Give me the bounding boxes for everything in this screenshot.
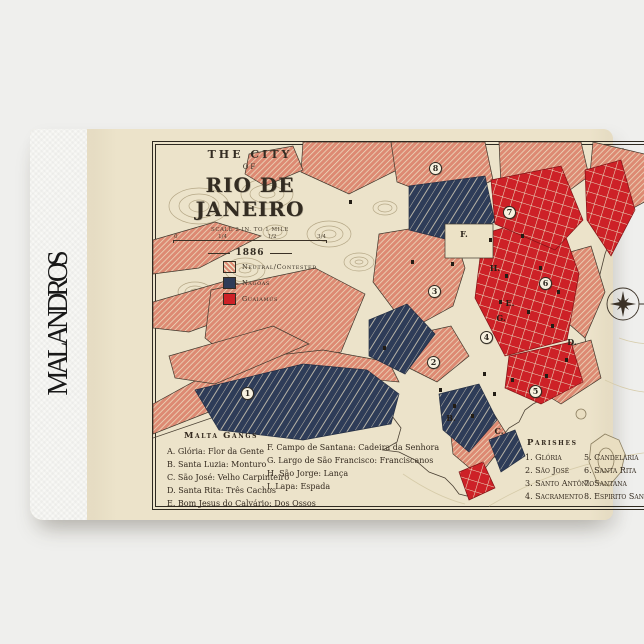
map-marker-1: 1 bbox=[241, 387, 254, 400]
legend-swatch-hatched bbox=[223, 261, 236, 273]
list-entry: F. Campo de Santana: Cadeira da Senhora bbox=[267, 441, 439, 454]
year-dash-right bbox=[270, 253, 292, 254]
scale-bar bbox=[173, 240, 327, 243]
scale-tick: 0 bbox=[174, 234, 178, 240]
letter-marker-B: B. bbox=[446, 413, 456, 423]
list-entry: G. Largo de São Francisco: Franciscanos bbox=[267, 454, 439, 467]
letter-marker-G: G. bbox=[496, 313, 505, 323]
map-frame: THE CITY OF RIO DE JANEIRO SCALE 2 IN. T… bbox=[152, 141, 644, 510]
letter-marker-E: E. bbox=[506, 298, 515, 308]
letter-marker-C: C. bbox=[494, 426, 503, 436]
compass-rose-icon bbox=[607, 288, 644, 320]
parishes-column2: 5. Candelária6. Santa Rita7. Santana8. E… bbox=[584, 451, 644, 503]
scale-label: SCALE 2 IN. TO 1 MILE bbox=[157, 227, 343, 233]
year-row: 1886 bbox=[157, 248, 343, 258]
parishes-title: Parishes bbox=[527, 438, 578, 448]
malta-gangs-column2: F. Campo de Santana: Cadeira da SenhoraG… bbox=[267, 441, 439, 493]
brand-text: MALANDROS bbox=[43, 254, 75, 395]
map-print: THE CITY OF RIO DE JANEIRO SCALE 2 IN. T… bbox=[87, 129, 613, 520]
product-photo: MALANDROS bbox=[0, 0, 644, 644]
map-year: 1886 bbox=[235, 248, 264, 258]
list-entry: 8. Espirito Santo bbox=[584, 490, 644, 503]
legend-item: Guaiamús bbox=[223, 293, 317, 305]
map-title-line2: OF bbox=[157, 163, 343, 171]
legend-swatch-solid bbox=[223, 277, 236, 289]
legend-item: Neutral/Contested bbox=[223, 261, 317, 273]
year-dash-left bbox=[208, 253, 230, 254]
map-title-line3: RIO DE JANEIRO bbox=[157, 173, 343, 221]
list-entry: I. Lapa: Espada bbox=[267, 480, 439, 493]
legend-label: Neutral/Contested bbox=[242, 263, 317, 271]
map-legend: Neutral/ContestedNagoasGuaiamús bbox=[223, 261, 317, 309]
map-title-line1: THE CITY bbox=[157, 148, 343, 161]
map-marker-3: 3 bbox=[428, 285, 441, 298]
park-square bbox=[445, 224, 493, 258]
map-title-block: THE CITY OF RIO DE JANEIRO SCALE 2 IN. T… bbox=[157, 148, 343, 258]
legend-label: Guaiamús bbox=[242, 295, 278, 303]
scale-tick: 1/4 bbox=[218, 234, 227, 240]
list-entry: H. São Jorge: Lança bbox=[267, 467, 439, 480]
map-marker-6: 6 bbox=[539, 277, 552, 290]
legend-swatch-solid bbox=[223, 293, 236, 305]
map-marker-4: 4 bbox=[480, 331, 493, 344]
scale-tick: 1/2 bbox=[268, 234, 277, 240]
list-entry: 7. Santana bbox=[584, 477, 644, 490]
letter-marker-H: H. bbox=[490, 263, 500, 273]
towel-hem: MALANDROS bbox=[30, 129, 87, 520]
letter-marker-D: D. bbox=[567, 337, 576, 347]
kitchen-towel: MALANDROS bbox=[30, 129, 613, 520]
list-entry: 6. Santa Rita bbox=[584, 464, 644, 477]
malta-gangs-title: Malta Gangs bbox=[184, 431, 258, 441]
letter-marker-F: F. bbox=[460, 229, 468, 239]
map-marker-7: 7 bbox=[503, 206, 516, 219]
scale-tick: 3/4 bbox=[317, 234, 326, 240]
legend-item: Nagoas bbox=[223, 277, 317, 289]
map-frame-inner: THE CITY OF RIO DE JANEIRO SCALE 2 IN. T… bbox=[153, 142, 644, 509]
map-marker-2: 2 bbox=[427, 356, 440, 369]
list-entry: 5. Candelária bbox=[584, 451, 644, 464]
legend-label: Nagoas bbox=[242, 279, 270, 287]
map-marker-8: 8 bbox=[429, 162, 442, 175]
list-entry: E. Bom Jesus do Calvário: Dos Ossos bbox=[167, 497, 316, 510]
map-marker-5: 5 bbox=[529, 385, 542, 398]
